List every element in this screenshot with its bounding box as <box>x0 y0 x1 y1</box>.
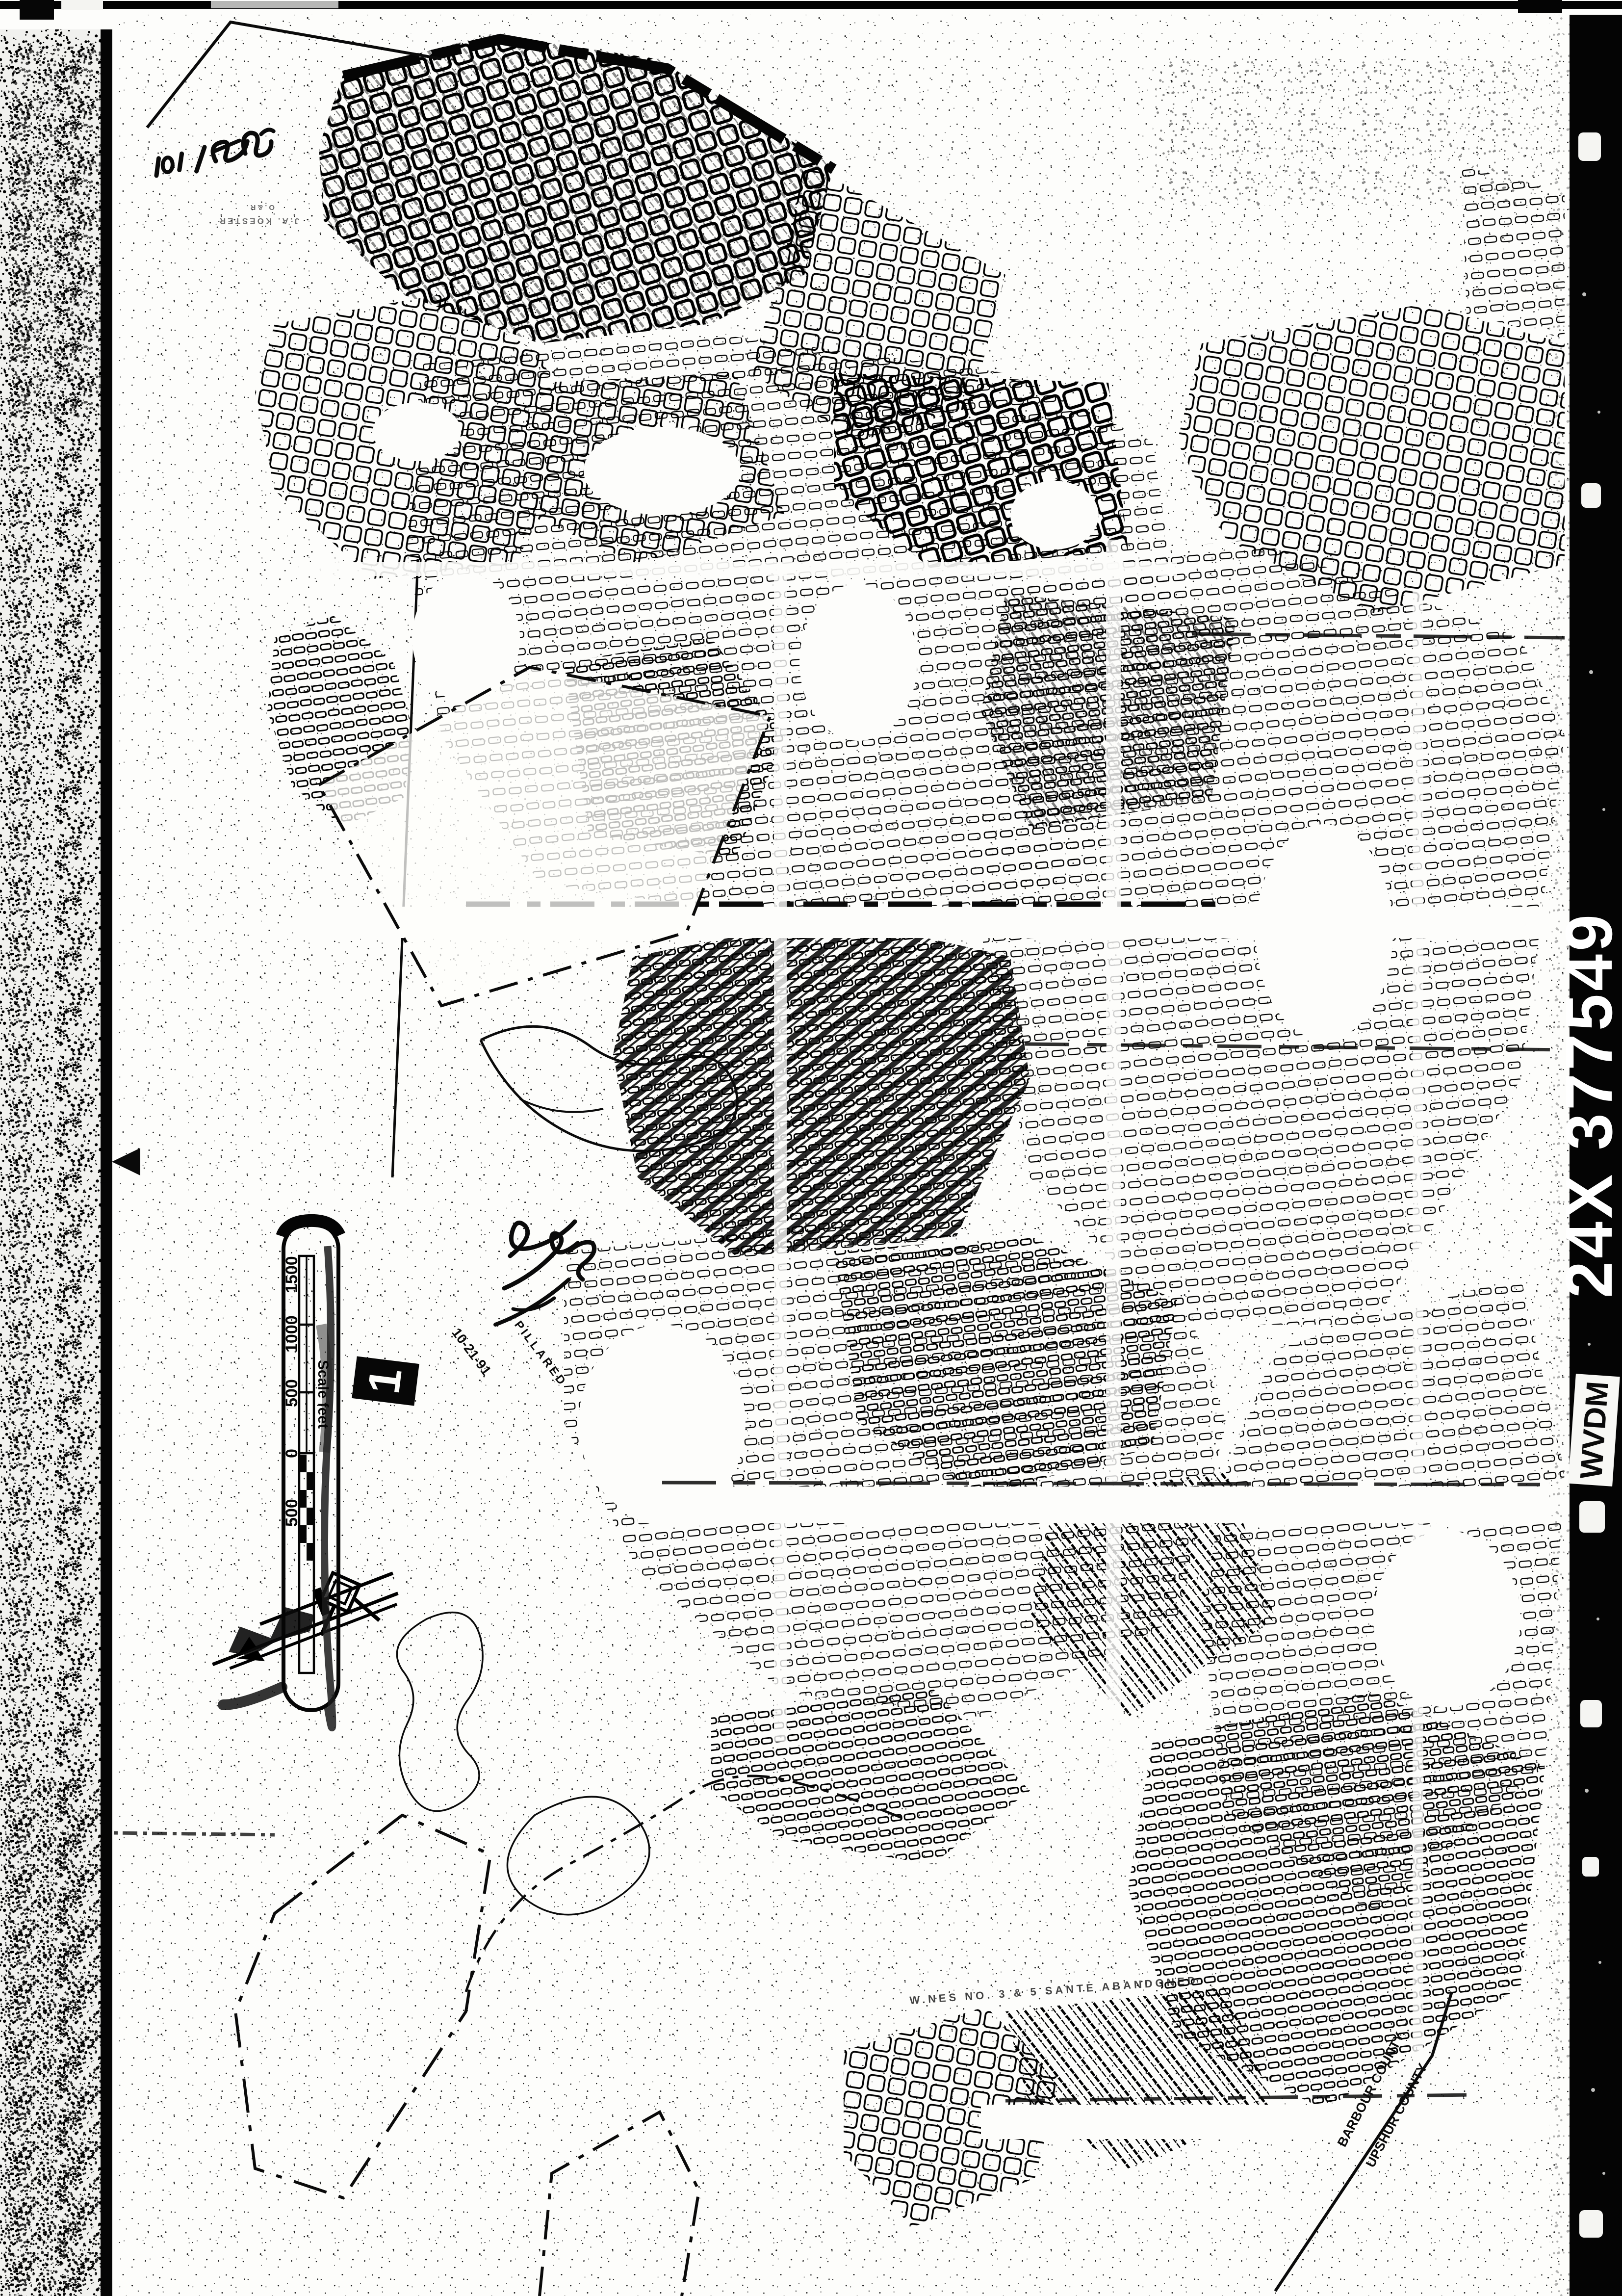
svg-text:WVDM: WVDM <box>1574 1380 1615 1480</box>
svg-text:500: 500 <box>283 1499 301 1527</box>
svg-text:J.A. KOESTER: J.A. KOESTER <box>218 216 299 226</box>
svg-text:0: 0 <box>283 1449 301 1458</box>
svg-text:500: 500 <box>283 1379 301 1407</box>
svg-text:O.&R.: O.&R. <box>244 203 275 211</box>
svg-text:1000: 1000 <box>283 1315 301 1353</box>
svg-text:1500: 1500 <box>283 1256 301 1293</box>
svg-text:Scale feet: Scale feet <box>315 1360 331 1429</box>
svg-text:24X 377549: 24X 377549 <box>1552 912 1622 1298</box>
